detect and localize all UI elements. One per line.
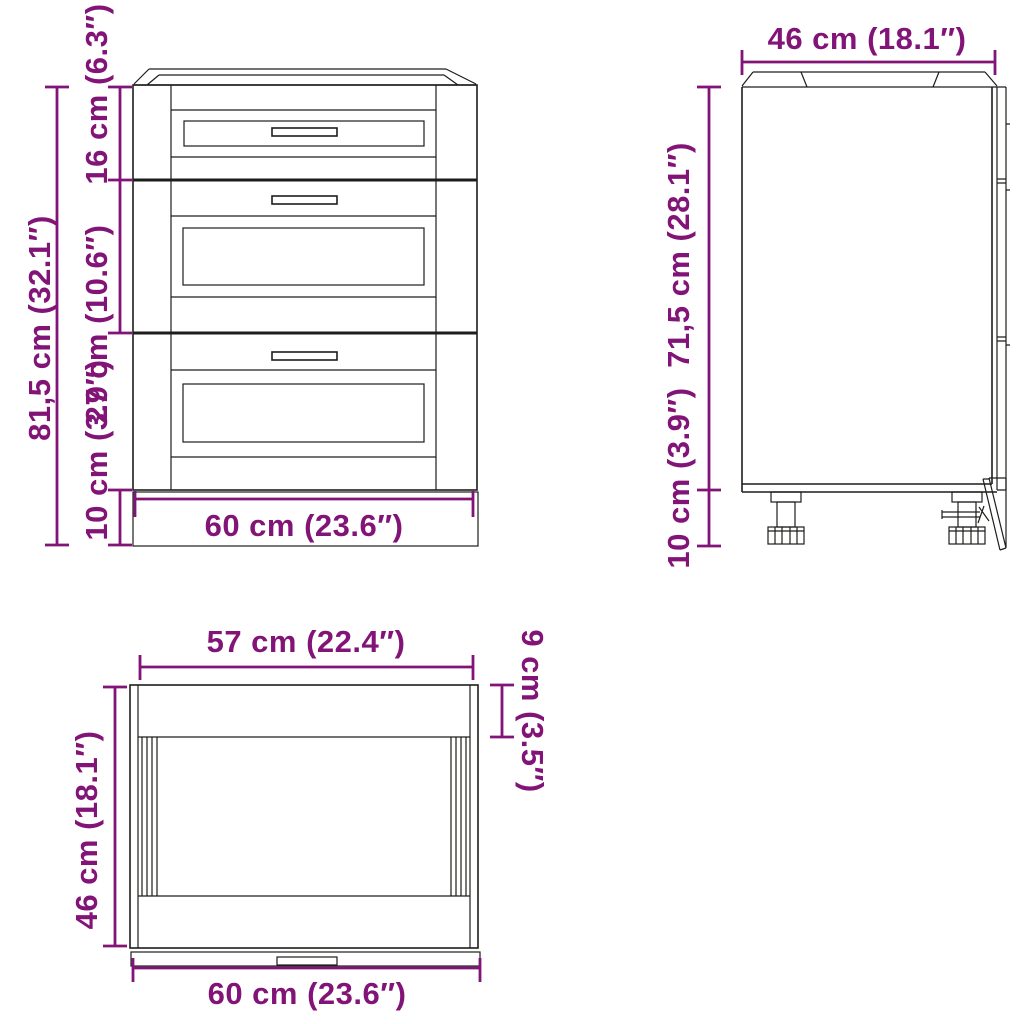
dim-top-depth: 46 cm (18.1″) — [66, 640, 108, 1020]
dim-side-depth: 46 cm (18.1″) — [677, 18, 1024, 60]
top-view-drawing — [130, 685, 480, 966]
dim-top-width: 60 cm (23.6″) — [117, 973, 497, 1015]
dim-front-width: 60 cm (23.6″) — [114, 505, 494, 547]
dim-side-plinth-height: 10 cm (3.9″) — [658, 288, 700, 668]
dim-front-total-height: 81,5 cm (32.1″) — [19, 138, 61, 518]
dim-front-plinth-height: 10 cm (3.9″) — [76, 260, 118, 640]
side-view-drawing — [742, 72, 1010, 550]
dim-top-front-width: 57 cm (22.4″) — [116, 621, 496, 663]
dimension-diagram: 81,5 cm (32.1″) 16 cm (6.3″) 27 cm (10.6… — [0, 0, 1024, 1024]
dim-top-top-depth: 9 cm (3.5″) — [511, 521, 553, 901]
front-view-drawing — [133, 69, 478, 546]
